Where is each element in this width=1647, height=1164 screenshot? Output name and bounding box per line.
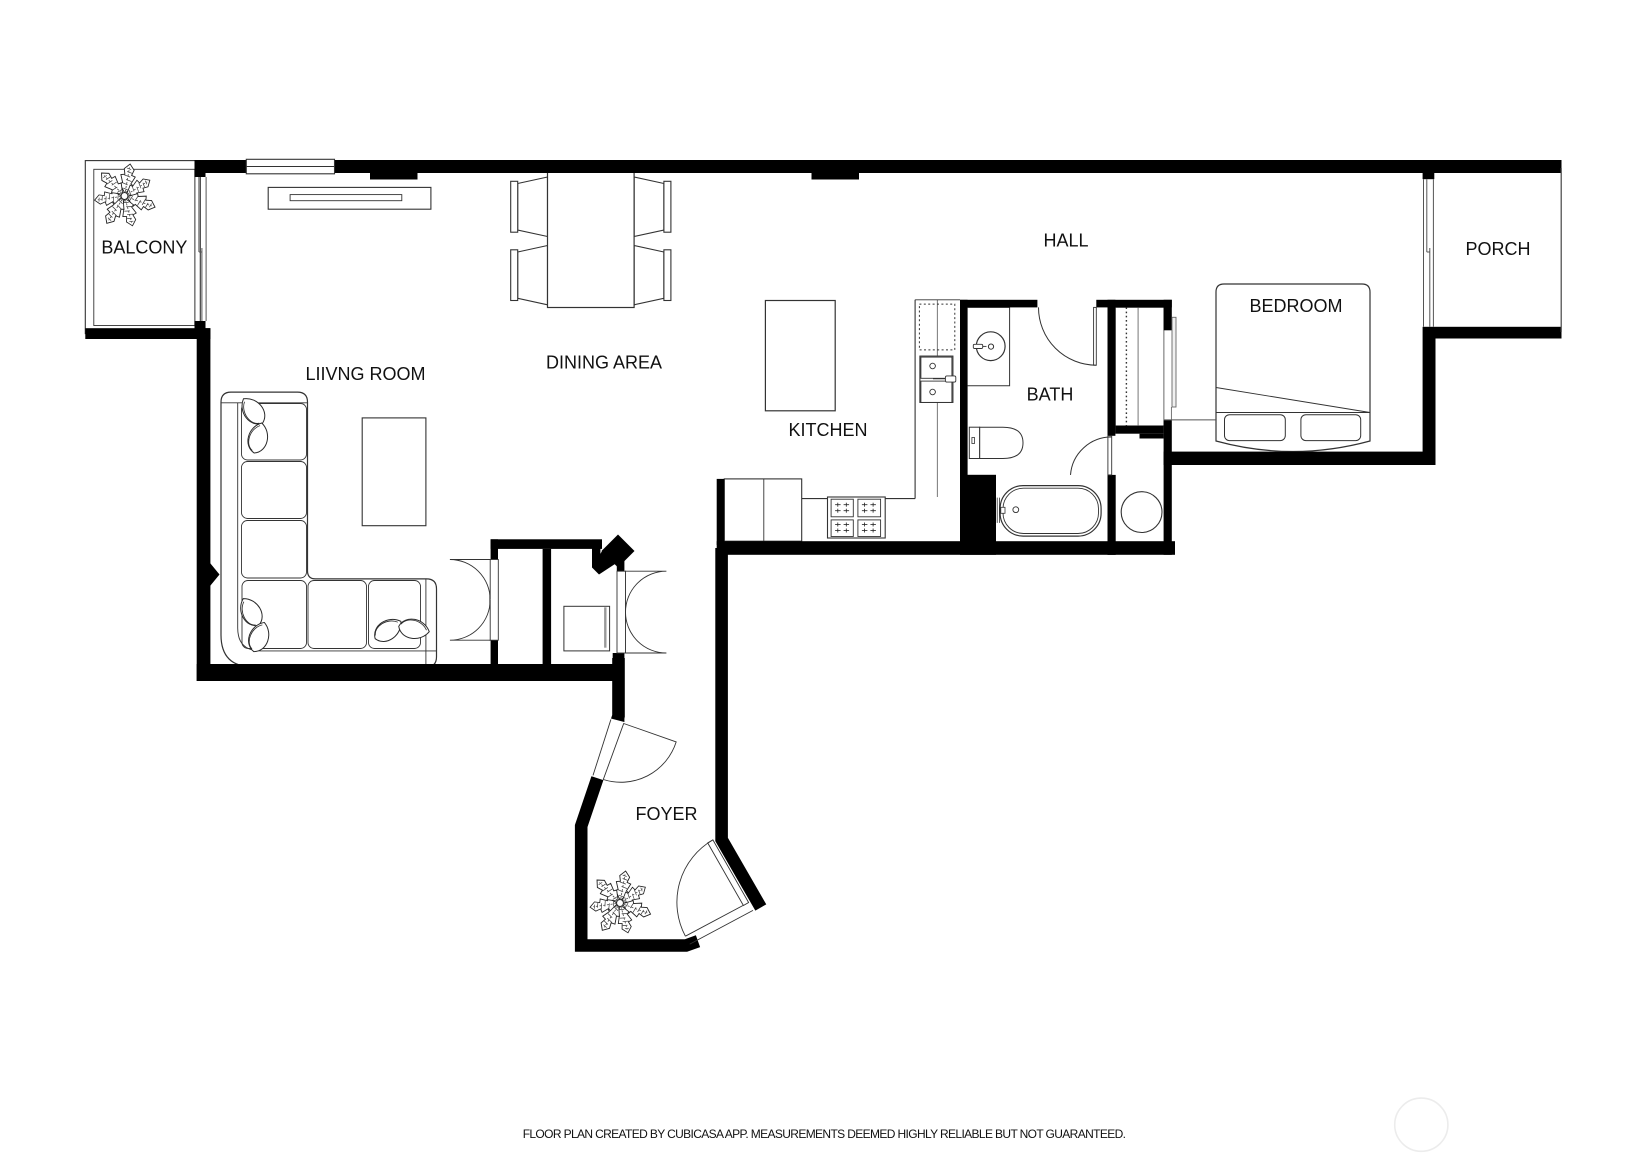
svg-text:BALCONY: BALCONY [101, 238, 187, 258]
svg-text:LIIVNG ROOM: LIIVNG ROOM [305, 364, 425, 384]
svg-text:BATH: BATH [1027, 385, 1074, 405]
svg-text:FLOOR PLAN CREATED BY CUBICASA: FLOOR PLAN CREATED BY CUBICASA APP. MEAS… [523, 1127, 1126, 1141]
svg-text:DINING AREA: DINING AREA [546, 353, 662, 373]
svg-text:PORCH: PORCH [1465, 239, 1530, 259]
svg-text:BEDROOM: BEDROOM [1249, 296, 1342, 316]
svg-text:HALL: HALL [1043, 231, 1088, 251]
svg-text:FOYER: FOYER [635, 804, 697, 824]
svg-text:KITCHEN: KITCHEN [788, 420, 867, 440]
